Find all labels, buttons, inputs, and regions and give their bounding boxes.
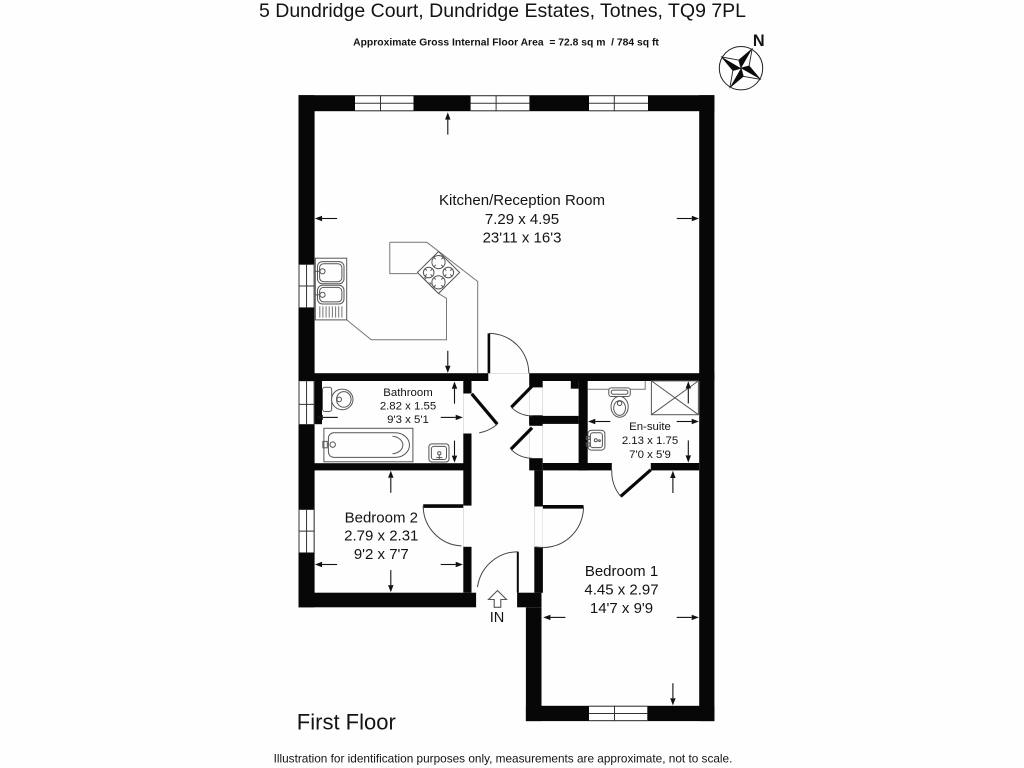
svg-text:14'7 x 9'9: 14'7 x 9'9 [590,600,653,617]
svg-text:Bathroom: Bathroom [383,387,432,399]
svg-text:7.29 x 4.95: 7.29 x 4.95 [485,211,559,228]
svg-text:First Floor: First Floor [297,709,396,734]
svg-text:Bedroom 2: Bedroom 2 [345,510,418,527]
svg-text:Bedroom 1: Bedroom 1 [585,563,658,580]
svg-text:Approximate Gross Internal Flo: Approximate Gross Internal Floor Area = … [353,38,659,49]
svg-text:IN: IN [490,610,505,626]
svg-text:Kitchen/Reception Room: Kitchen/Reception Room [439,192,605,209]
svg-text:Illustration for identificatio: Illustration for identification purposes… [274,752,733,766]
svg-text:2.79 x 2.31: 2.79 x 2.31 [344,528,418,545]
svg-text:5 Dundridge Court, Dundridge E: 5 Dundridge Court, Dundridge Estates, To… [259,0,746,22]
svg-text:2.13 x 1.75: 2.13 x 1.75 [622,435,678,447]
svg-text:7'0 x 5'9: 7'0 x 5'9 [629,449,671,461]
svg-text:9'2 x 7'7: 9'2 x 7'7 [354,546,409,563]
svg-text:4.45 x 2.97: 4.45 x 2.97 [584,582,658,599]
svg-text:N: N [753,32,765,50]
svg-text:9'3 x 5'1: 9'3 x 5'1 [387,414,429,426]
svg-text:2.82 x 1.55: 2.82 x 1.55 [380,400,436,412]
svg-text:23'11 x 16'3: 23'11 x 16'3 [483,230,562,247]
svg-text:En-suite: En-suite [629,421,671,433]
